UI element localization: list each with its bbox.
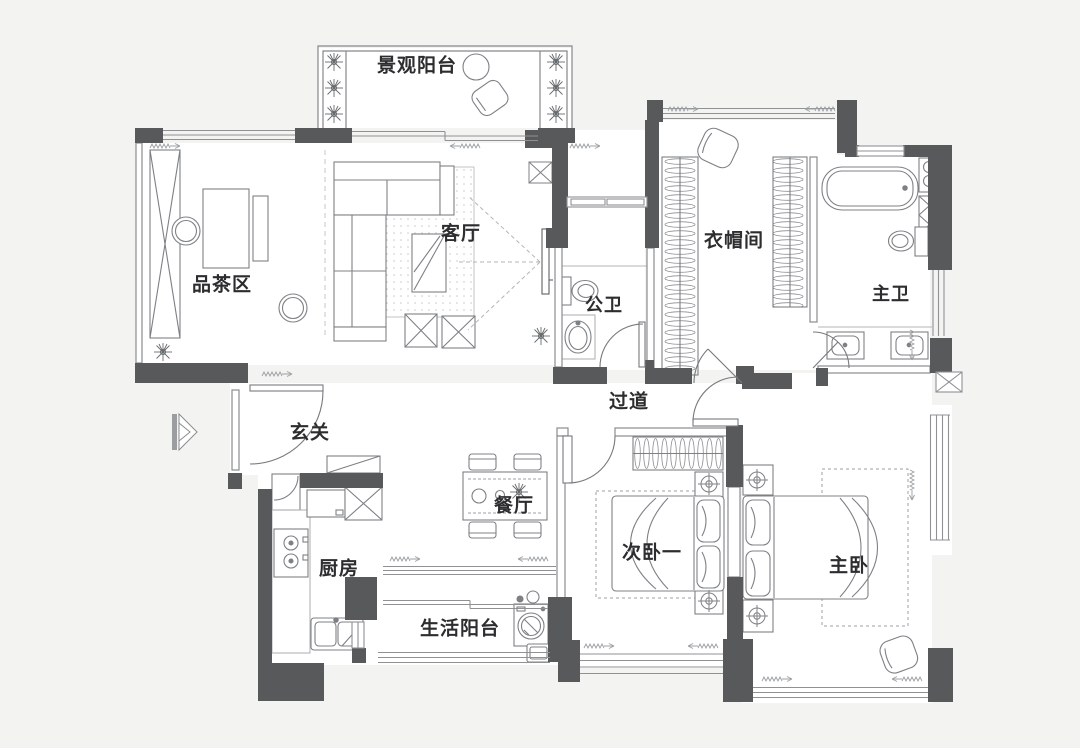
- floor-plan-drawing: [0, 0, 1080, 748]
- pillow: [697, 500, 720, 542]
- column-box: [529, 162, 552, 183]
- plant-icon: [532, 327, 550, 345]
- bedroom2-door-leaf: [563, 436, 572, 483]
- coffee-table: [412, 234, 446, 292]
- toilet-tank: [915, 227, 928, 256]
- tea-cabinet: [150, 150, 180, 338]
- entry-door-leaf: [250, 385, 323, 391]
- master-bedroom-door-leaf: [693, 419, 738, 426]
- pillow: [746, 500, 770, 545]
- floor-plan-image: 景观阳台 品茶区 客厅 公卫 衣帽间 主卫 玄关 过道 餐厅 厨房 生活阳台 次…: [0, 0, 1080, 748]
- public-bath-door-leaf: [639, 322, 645, 367]
- tea-chair-1: [172, 217, 200, 245]
- tea-chair-2: [279, 294, 307, 322]
- plant-icon: [154, 343, 172, 361]
- tea-table: [203, 189, 268, 268]
- entry-items: [327, 456, 380, 473]
- pillow: [746, 551, 770, 596]
- table-plant-icon: [510, 483, 528, 501]
- pillow: [697, 546, 720, 588]
